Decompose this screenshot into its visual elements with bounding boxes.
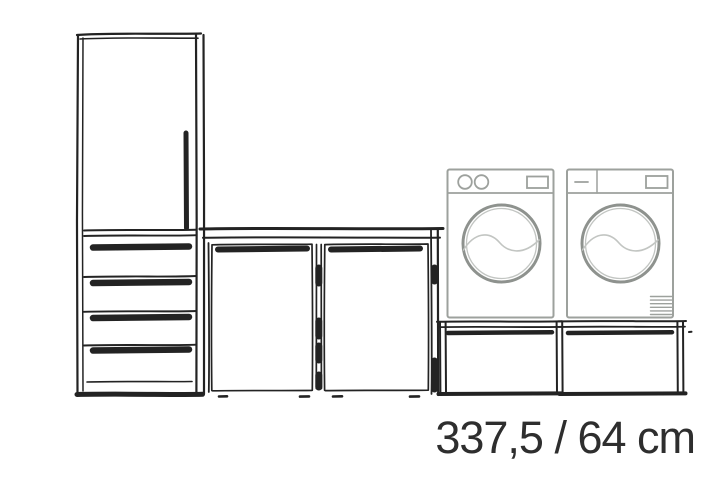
stand-middle-leg xyxy=(557,322,563,394)
countertop-edge xyxy=(200,228,443,229)
cabinet-right-frame xyxy=(196,34,197,394)
stand-bottom-rail xyxy=(560,393,686,394)
cabinet-top-edge-inner xyxy=(80,38,198,39)
dimension-label: 337,5 / 64 cm xyxy=(435,412,695,463)
washer-door xyxy=(463,205,540,282)
dryer-door xyxy=(582,205,659,282)
drawer-divider-line xyxy=(84,235,196,236)
door-handle xyxy=(218,249,307,250)
washer-detergent-drawer xyxy=(527,177,548,189)
base-cabinet-door-right xyxy=(324,244,428,391)
drawer-divider-line xyxy=(84,276,196,277)
tall-cabinet xyxy=(77,34,204,395)
floorplan-canvas: 337,5 / 64 cm xyxy=(0,0,718,503)
door-outline xyxy=(212,244,313,391)
base-cabinet-left-panel xyxy=(209,243,210,392)
cabinet-left-frame xyxy=(77,35,78,394)
cabinet-top-edge xyxy=(77,34,201,36)
appliance-stands xyxy=(437,321,692,394)
cabinet-plinth-line xyxy=(87,382,192,383)
stand-front-rail xyxy=(448,332,552,333)
elevation-drawing: 337,5 / 64 cm xyxy=(0,0,718,503)
stand-top-rail xyxy=(437,321,562,322)
drawer-divider-line xyxy=(84,345,196,346)
washing-machine xyxy=(448,170,554,318)
drawer-handle xyxy=(93,317,189,318)
stand-right-leg xyxy=(677,322,683,394)
base-cabinet-door-left xyxy=(212,244,313,391)
stand-front-rail xyxy=(568,332,672,333)
door-handle xyxy=(331,249,420,250)
drawer-handle xyxy=(93,350,189,351)
dryer-display xyxy=(646,176,668,188)
door-divider xyxy=(316,245,321,389)
washer-knob xyxy=(458,175,472,189)
cabinet-left-frame-inner xyxy=(82,38,83,391)
dryer-vent-grille xyxy=(651,297,672,315)
stand-bottom-rail xyxy=(439,393,562,394)
cabinet-right-frame-outer xyxy=(204,35,205,394)
washer-knob xyxy=(475,175,489,189)
cabinet-door-bottom-line xyxy=(84,230,196,231)
drawer-divider-line xyxy=(84,311,196,312)
cabinet-door-handle xyxy=(186,133,187,228)
door-outline xyxy=(324,244,428,391)
washer-door-glass-wave xyxy=(464,235,540,251)
appliance-stand-right xyxy=(557,321,692,394)
tumble-dryer xyxy=(567,170,673,318)
appliance-stand-left xyxy=(437,321,562,394)
stand-left-leg xyxy=(440,322,446,394)
drawer-handle xyxy=(93,282,189,283)
base-cabinet xyxy=(200,228,443,396)
drawer-handle xyxy=(93,247,189,248)
dryer-door-glass-wave xyxy=(583,235,659,251)
